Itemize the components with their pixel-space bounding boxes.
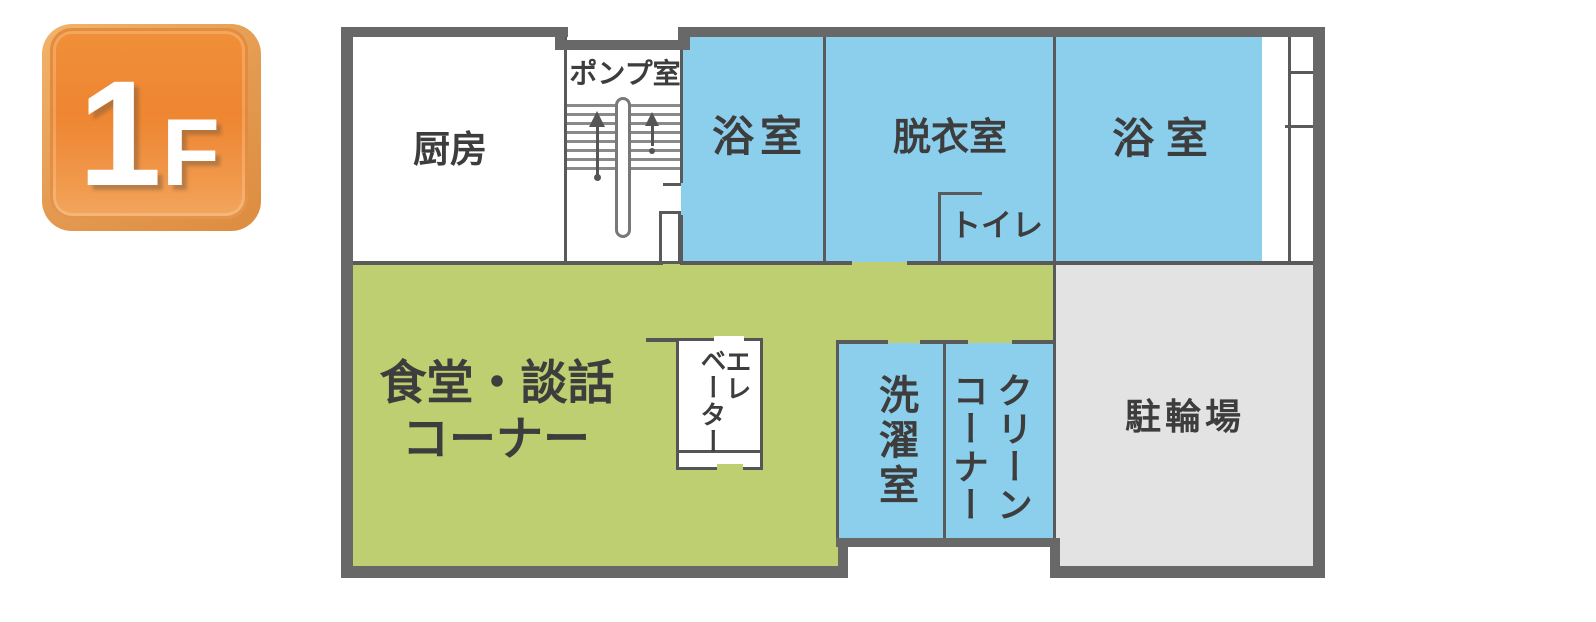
- elevator-bottom-opening: [717, 464, 743, 471]
- wall-laundry-top: [836, 340, 888, 344]
- wall-bath-dressing: [823, 36, 826, 265]
- wall-outer-top-kitchen: [341, 27, 568, 37]
- duct-divider: [1285, 125, 1315, 128]
- room-clean-corner-label-left: コーナー: [950, 372, 986, 524]
- room-dining-label-line1: 食堂・談話: [380, 356, 615, 410]
- floor-badge-number: 1: [78, 58, 161, 208]
- stair-up-arrow: [596, 126, 599, 176]
- room-clean-corner-label-right: クリーン: [994, 372, 1030, 524]
- wall-outer-notch-top: [836, 538, 1060, 547]
- stair-arrow-dot: [649, 148, 655, 154]
- stair-up-arrow-head: [645, 112, 659, 126]
- wall-outer-bottom-gray: [1050, 566, 1325, 578]
- wall-outer-top: [678, 27, 1325, 37]
- wall-outer-top-pump: [555, 40, 690, 50]
- stair-up-arrow: [651, 126, 654, 146]
- stair-handrail: [615, 97, 631, 238]
- stairwell-door: [659, 211, 681, 264]
- stair-arrow-dot: [594, 174, 601, 181]
- room-dining-label-line2: コーナー: [402, 412, 590, 466]
- stair-door-lintel: [663, 183, 681, 186]
- wall-dressing-bath: [1053, 36, 1056, 265]
- wall-hall-top: [351, 261, 663, 265]
- room-bath-right-label: 浴 室: [1112, 115, 1208, 163]
- wall-hall-top: [907, 261, 1325, 265]
- dining-corridor-area: [836, 262, 1056, 343]
- wall-outer-right: [1313, 27, 1325, 578]
- elevator-label-right: エレ: [724, 348, 750, 402]
- stair-up-arrow-head: [589, 111, 605, 127]
- wall-laundry-clean: [943, 343, 946, 545]
- room-kitchen-label: 厨房: [413, 129, 487, 172]
- wall-stairs-bath: [680, 215, 683, 265]
- room-laundry-label: 洗濯室: [875, 374, 915, 509]
- room-dressing-label: 脱衣室: [893, 117, 1007, 161]
- floor-badge-suffix: F: [162, 106, 220, 201]
- wall-laundry-top: [1012, 340, 1056, 344]
- wall-laundry-left: [836, 340, 839, 545]
- toilet-wall-vertical: [938, 192, 941, 264]
- toilet-wall-horizontal: [938, 192, 982, 195]
- floor-badge: 1 F: [50, 28, 248, 219]
- elevator-label-left: ベーター: [699, 347, 725, 455]
- wall-hall-top: [680, 261, 852, 265]
- room-bath-left-label: 浴室: [712, 113, 808, 161]
- wall-outer-left: [341, 27, 353, 578]
- elevator-top-opening: [714, 336, 744, 344]
- toilet-label: トイレ: [950, 208, 1043, 244]
- pump-room-label: ポンプ室: [569, 58, 680, 90]
- wall-outer-bottom-green: [341, 566, 848, 578]
- duct-divider: [1291, 71, 1315, 74]
- wall-hall-parking: [1053, 265, 1056, 545]
- room-bicycle-parking-label: 駐輪場: [1125, 396, 1245, 437]
- elevator-wall-stub: [646, 338, 678, 342]
- wall-kitchen-stairs: [564, 36, 567, 265]
